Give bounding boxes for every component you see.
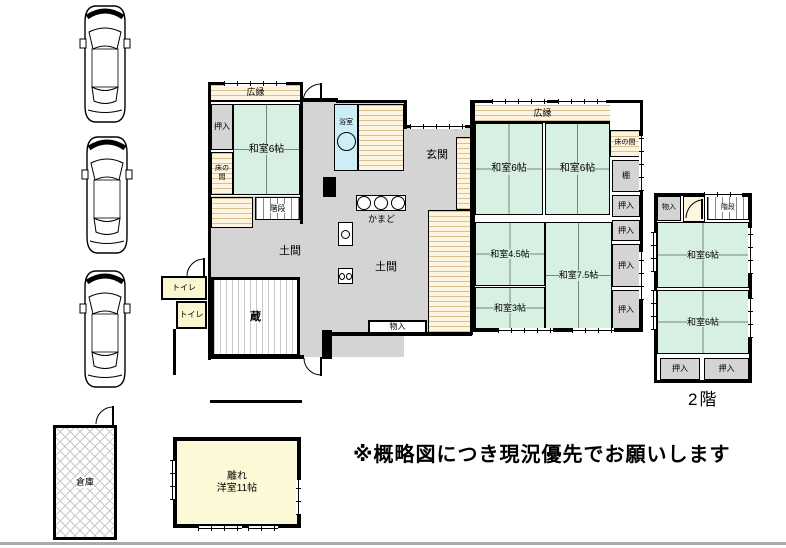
car-icon — [80, 133, 134, 257]
room-oshiire-2f-a: 押入 — [660, 358, 700, 380]
room-souko: 倉庫 — [53, 425, 117, 540]
window-mark — [224, 81, 286, 86]
kamado-label: かまど — [368, 212, 395, 225]
wall — [210, 400, 302, 403]
sink-unit — [338, 222, 353, 246]
wall — [323, 177, 336, 197]
room-hiroen-left: 広縁 — [211, 85, 300, 102]
room-washitsu3: 和室3帖 — [475, 287, 545, 329]
room-oshiire-r4: 押入 — [612, 290, 640, 329]
right-wing: 広縁 和室6帖 和室6帖 床の間 棚 押入 押入 押入 押入 和室4.5帖 和室… — [472, 100, 643, 332]
window-mark — [492, 99, 547, 104]
kamado-burner-icon — [374, 196, 388, 210]
door-swing-icon — [95, 406, 114, 425]
bathtub-icon — [337, 132, 356, 151]
window-mark — [748, 298, 753, 338]
floorplan-canvas: 広縁 押入 和室6帖 床の間 階段 蔵 浴室 かまど 土間 土間 玄関 物入 — [0, 0, 786, 548]
wall — [208, 355, 304, 359]
room-toire-1: トイレ — [161, 276, 207, 300]
room-oshiire-1f-topleft: 押入 — [211, 104, 233, 150]
room-yokushitsu: 浴室 — [334, 104, 358, 171]
window-mark — [572, 328, 614, 333]
window-mark — [498, 328, 553, 333]
room-tokonoma-right: 床の間 — [610, 130, 640, 157]
room-oshiire-r2: 押入 — [612, 220, 640, 241]
bottom-edge-line — [0, 542, 786, 545]
room-hanare: 離れ 洋室11帖 — [173, 437, 301, 528]
room-washitsu75: 和室7.5帖 — [545, 222, 612, 329]
room-oshiire-2f-b: 押入 — [704, 358, 749, 380]
room-washitsu45: 和室4.5帖 — [475, 222, 545, 286]
wall — [330, 332, 472, 336]
room-oshiire-r3: 押入 — [612, 244, 640, 287]
room-washitsu6-1f-a: 和室6帖 — [475, 123, 543, 215]
room-washitsu6-1f-b: 和室6帖 — [545, 123, 610, 215]
room-tokonoma-left: 床の間 — [211, 152, 233, 195]
window-mark — [651, 290, 656, 330]
window-mark — [639, 136, 644, 191]
doma-label-center: 土間 — [375, 258, 397, 274]
door-swing-icon — [685, 199, 703, 219]
alcove-hatch — [211, 197, 253, 228]
wall — [208, 82, 211, 360]
window-mark — [198, 526, 242, 531]
stove-burner-icon — [346, 273, 352, 280]
stove-burner-icon — [339, 273, 345, 280]
kamado-burner-icon — [357, 196, 371, 210]
hatch-area-middle — [358, 104, 404, 171]
window-mark — [639, 252, 644, 300]
car-icon — [78, 2, 132, 126]
door-swing-icon — [302, 83, 322, 102]
disclaimer-note: ※概略図につき現況優先でお願いします — [353, 438, 730, 467]
window-mark — [651, 232, 656, 272]
door-cell-2f — [683, 196, 705, 222]
room-oshiire-r1: 押入 — [612, 195, 640, 217]
room-monoire-2f: 物入 — [657, 196, 681, 221]
kamado-unit — [356, 195, 406, 211]
wall — [336, 100, 406, 103]
second-floor-caption: 2階 — [688, 385, 718, 410]
second-floor-plan: 物入 階段 和室6帖 和室6帖 押入 押入 — [654, 193, 752, 383]
room-kaidan-1f: 階段 — [255, 197, 300, 220]
corridor-hatch-lower — [428, 210, 472, 333]
window-mark — [410, 124, 465, 129]
door-swing-icon — [186, 258, 205, 277]
room-washitsu6-1f-left: 和室6帖 — [233, 104, 300, 195]
room-kura: 蔵 — [211, 277, 300, 357]
wall — [173, 329, 176, 375]
stove-unit — [338, 268, 353, 284]
door-swing-icon — [303, 357, 322, 376]
room-washitsu6-2f-a: 和室6帖 — [657, 222, 749, 288]
window-mark — [170, 460, 175, 500]
room-hiroen-right: 広縁 — [475, 105, 610, 123]
kamado-burner-icon — [391, 196, 405, 210]
room-toire-2: トイレ — [176, 301, 207, 329]
hanare-label: 離れ — [227, 471, 247, 483]
room-washitsu6-2f-b: 和室6帖 — [657, 290, 749, 354]
sink-bowl-icon — [341, 230, 350, 239]
window-mark — [748, 228, 753, 274]
room-kaidan-2f: 階段 — [707, 196, 749, 220]
window-mark — [704, 192, 742, 197]
genkan-label: 玄関 — [426, 146, 448, 162]
room-tana: 棚 — [612, 160, 640, 192]
window-mark — [296, 480, 301, 515]
doma-label-left: 土間 — [279, 242, 301, 258]
wall — [300, 82, 303, 224]
window-mark — [248, 526, 278, 531]
car-icon — [78, 266, 132, 392]
window-mark — [558, 99, 606, 104]
hanare-room-label: 洋室11帖 — [217, 483, 257, 495]
